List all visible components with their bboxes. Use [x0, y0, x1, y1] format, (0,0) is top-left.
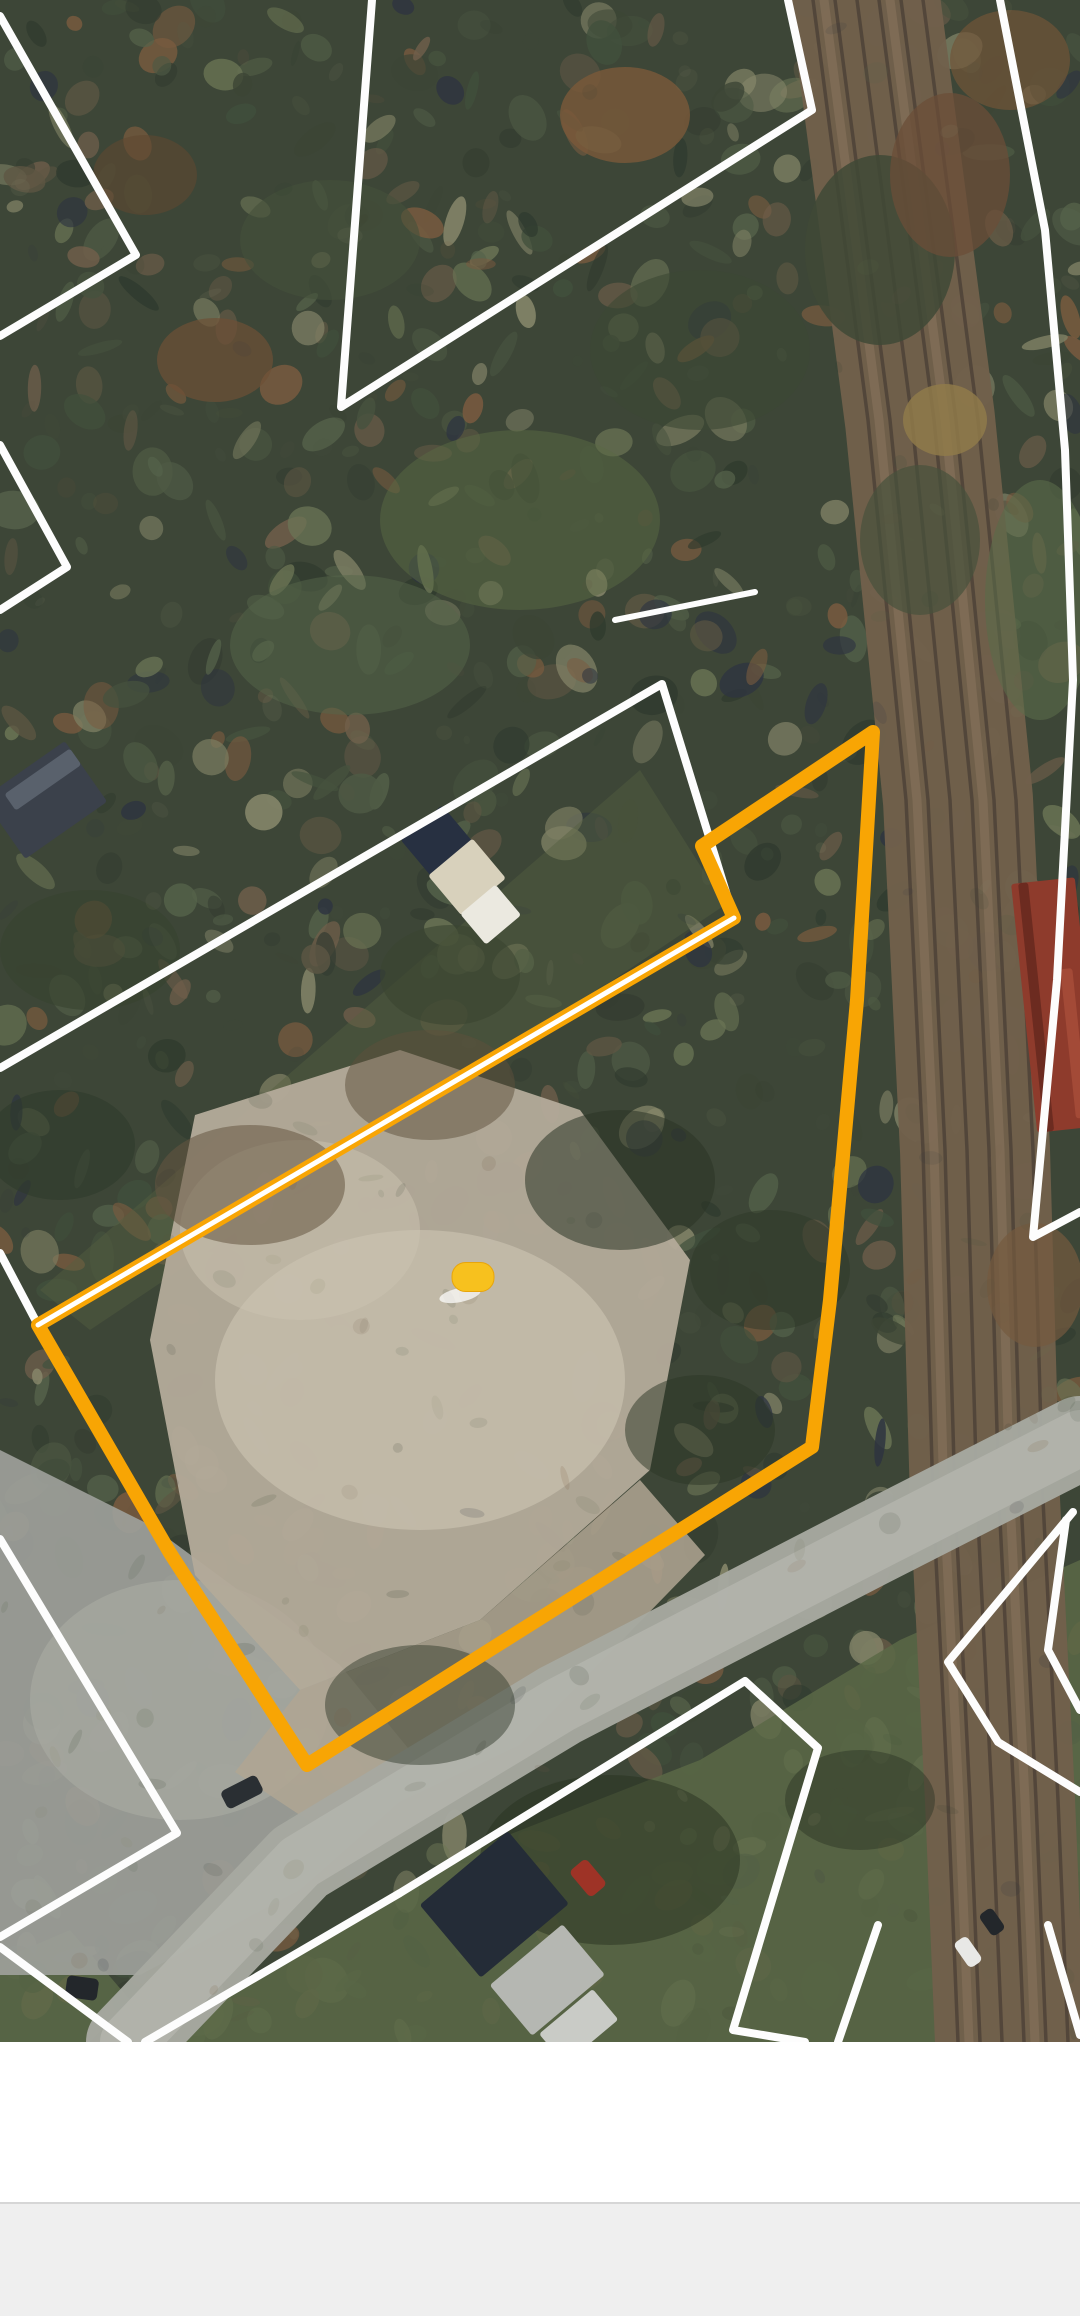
canopy	[590, 270, 810, 430]
app-screen	[0, 0, 1080, 2316]
content-spacer	[0, 2042, 1080, 2202]
canopy	[860, 465, 980, 615]
canopy	[240, 180, 420, 300]
canopy	[625, 1375, 775, 1485]
satellite-imagery	[0, 0, 1080, 2042]
canopy	[785, 1750, 935, 1850]
canopy	[325, 1645, 515, 1765]
canopy	[525, 1110, 715, 1250]
satellite-map[interactable]	[0, 0, 1080, 2042]
canopy	[380, 925, 520, 1025]
meadow	[380, 430, 660, 610]
pin-marker-icon	[452, 1263, 494, 1292]
autumn-tree	[157, 318, 273, 402]
footer-bar	[0, 2202, 1080, 2316]
autumn-tree	[560, 67, 690, 163]
scrub	[155, 1125, 345, 1245]
meadow	[230, 575, 470, 715]
autumn-tree	[903, 384, 987, 456]
autumn-tree	[987, 1223, 1080, 1347]
autumn-tree	[890, 93, 1010, 257]
